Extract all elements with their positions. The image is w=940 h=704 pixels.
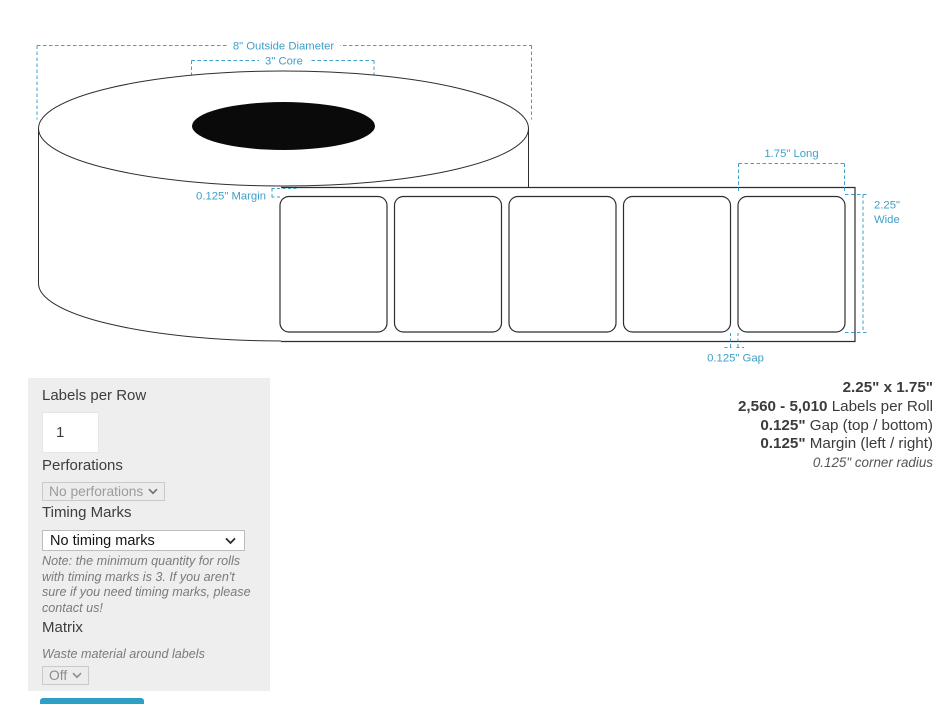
core-label: 3" Core — [265, 56, 303, 68]
timing-marks-label: Timing Marks — [42, 503, 256, 522]
matrix-select-value: Off — [49, 668, 67, 683]
spec-size: 2.25" x 1.75" — [738, 379, 933, 398]
wide-label-line1: 2.25" — [874, 200, 900, 212]
label-row — [280, 197, 845, 333]
spec-gap: 0.125" Gap (top / bottom) — [738, 417, 933, 436]
matrix-select[interactable]: Off — [42, 666, 89, 685]
outside-diameter-label: 8" Outside Diameter — [233, 41, 335, 53]
labels-per-row-label: Labels per Row — [42, 386, 256, 405]
labels-per-row-input[interactable] — [42, 412, 99, 453]
gap-label: 0.125" Gap — [707, 353, 764, 365]
perforations-label: Perforations — [42, 456, 256, 475]
timing-marks-select-value: No timing marks — [50, 533, 155, 549]
label-4 — [624, 197, 731, 333]
timing-marks-select[interactable]: No timing marks — [42, 530, 245, 551]
label-1 — [280, 197, 387, 333]
label-2 — [395, 197, 502, 333]
spec-corner-radius: 0.125" corner radius — [738, 454, 933, 473]
timing-marks-note: Note: the minimum quantity for rolls wit… — [42, 554, 256, 616]
roll-core — [192, 102, 375, 150]
margin-label: 0.125" Margin — [196, 191, 266, 203]
long-label: 1.75" Long — [764, 148, 818, 160]
matrix-label: Matrix — [42, 618, 256, 637]
wide-label-line2: Wide — [874, 214, 900, 226]
label-roll-diagram: 8" Outside Diameter 3" Core 0.125" Margi… — [0, 0, 940, 375]
chevron-down-icon — [225, 537, 236, 545]
label-3 — [509, 197, 616, 333]
chevron-down-icon — [148, 488, 158, 495]
perforations-select[interactable]: No perforations — [42, 482, 165, 501]
matrix-sublabel: Waste material around labels — [42, 647, 256, 661]
chevron-down-icon — [72, 672, 82, 679]
spec-labels-per-roll: 2,560 - 5,010 Labels per Roll — [738, 398, 933, 417]
spec-margin: 0.125" Margin (left / right) — [738, 435, 933, 454]
label-5 — [738, 197, 845, 333]
spec-summary: 2.25" x 1.75" 2,560 - 5,010 Labels per R… — [738, 379, 933, 473]
action-button-peek[interactable] — [40, 698, 144, 704]
perforations-select-value: No perforations — [49, 484, 143, 499]
options-panel: Labels per Row Perforations No perforati… — [28, 378, 270, 691]
